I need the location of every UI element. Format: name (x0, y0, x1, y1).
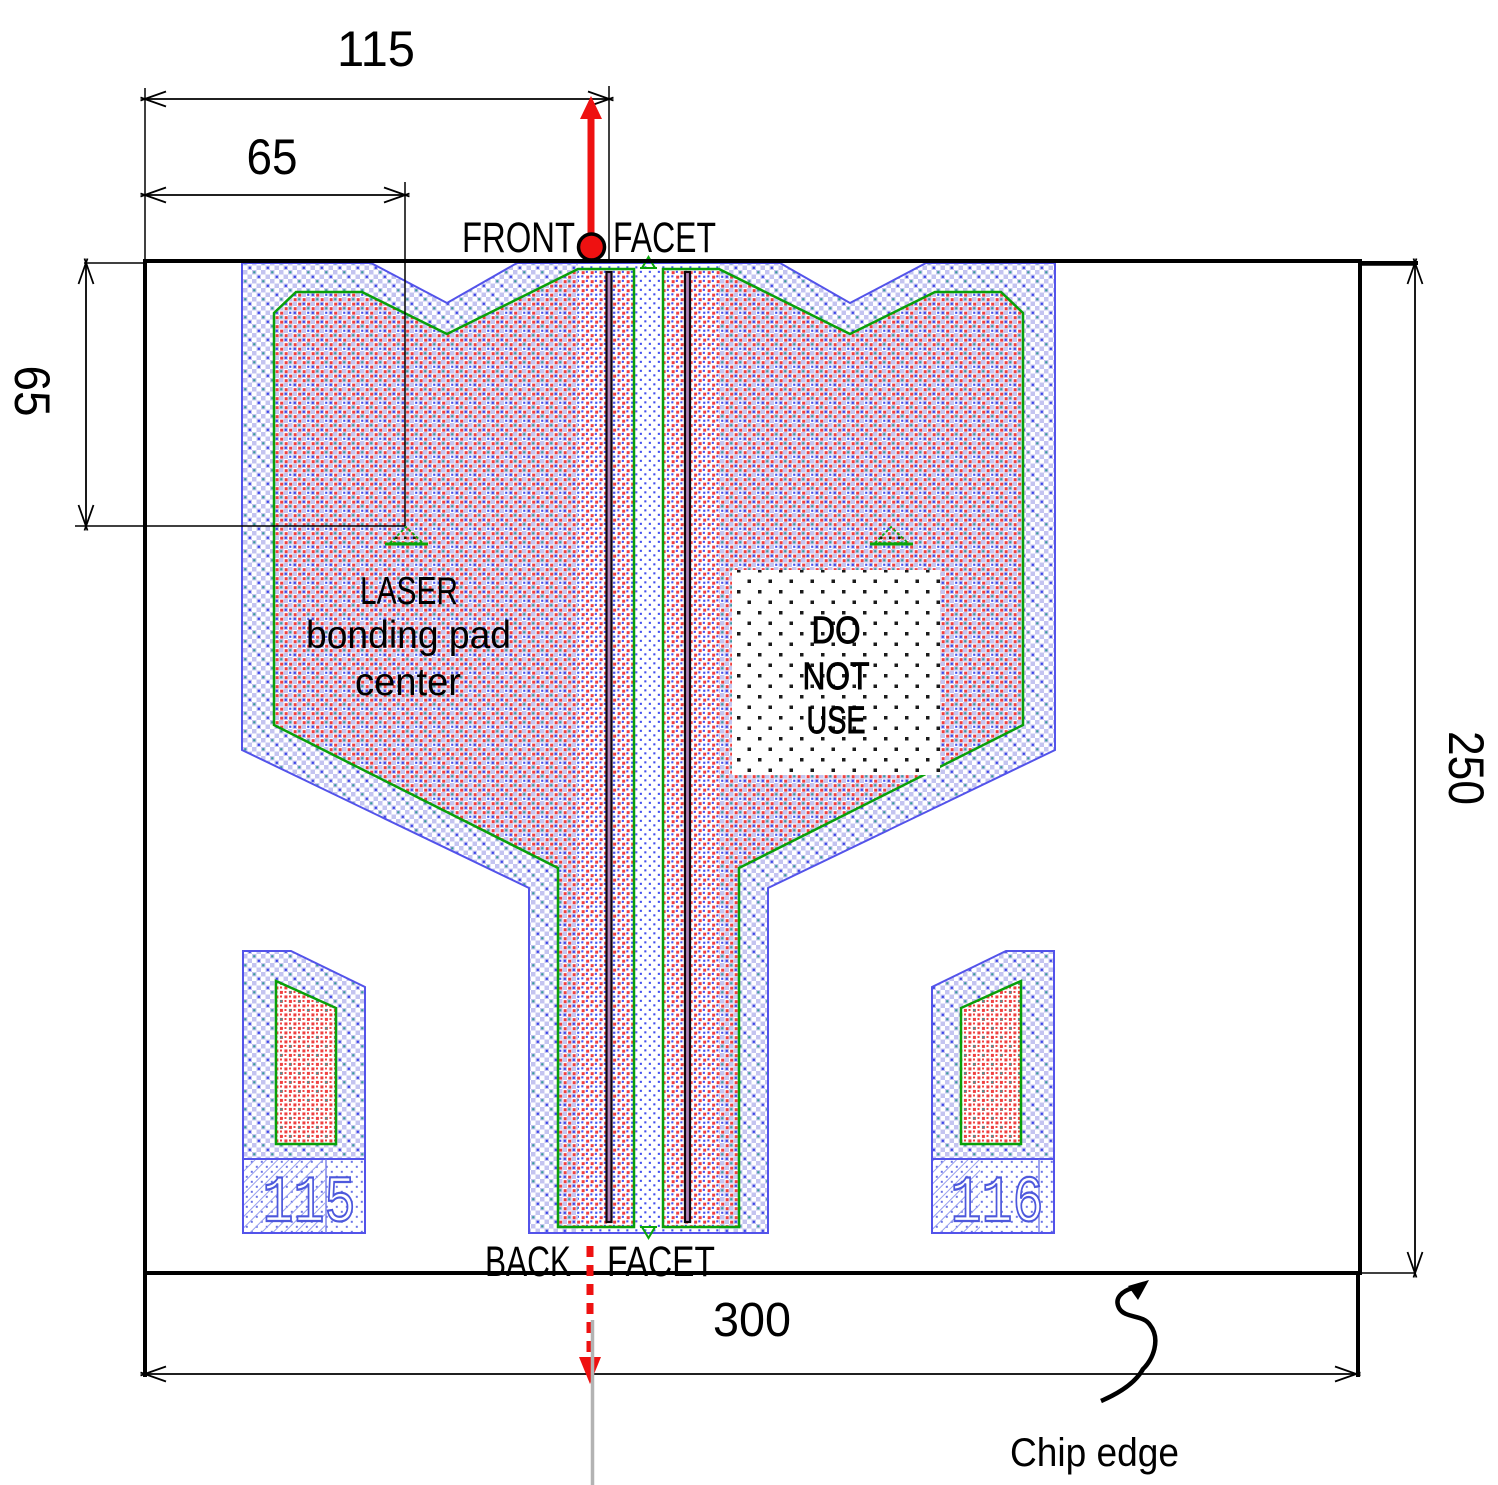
svg-text:NOT: NOT (803, 656, 870, 698)
svg-text:LASER: LASER (360, 570, 458, 613)
svg-text:Chip edge: Chip edge (1010, 1431, 1179, 1475)
svg-text:116: 116 (951, 1166, 1044, 1241)
svg-text:65: 65 (247, 129, 298, 185)
svg-text:DO: DO (812, 610, 861, 652)
svg-text:65: 65 (4, 366, 60, 417)
svg-text:FACET: FACET (613, 214, 716, 262)
svg-text:300: 300 (713, 1294, 791, 1347)
svg-text:FRONT: FRONT (462, 214, 575, 262)
svg-text:FACET: FACET (607, 1238, 715, 1286)
svg-text:115: 115 (337, 21, 415, 77)
svg-text:center: center (355, 661, 461, 704)
svg-text:bonding pad: bonding pad (306, 614, 511, 657)
svg-text:250: 250 (1438, 731, 1494, 805)
svg-text:115: 115 (263, 1166, 356, 1241)
svg-text:USE: USE (807, 700, 866, 742)
svg-text:BACK: BACK (485, 1238, 571, 1286)
